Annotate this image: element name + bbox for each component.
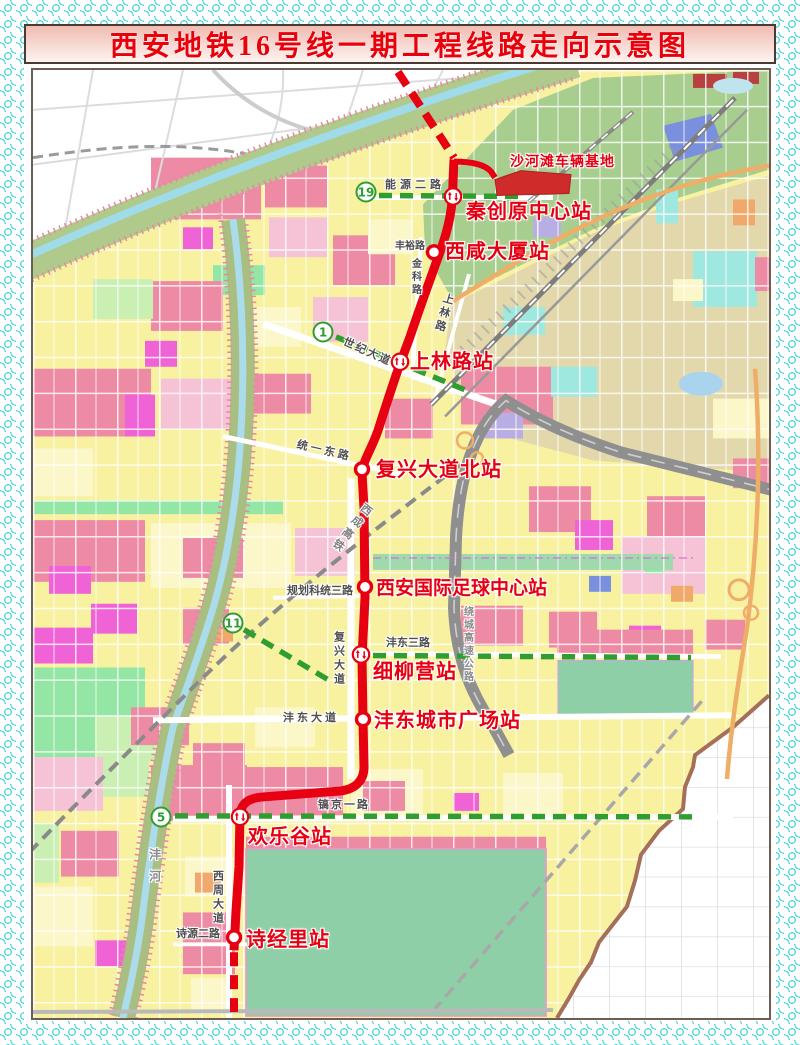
road-label-nengyuan-erlu: 能源二路 xyxy=(385,180,445,192)
station-marker-fuxing-dadao-bei xyxy=(356,463,369,476)
central-park xyxy=(558,661,693,718)
station-marker-shanglin-lu xyxy=(392,354,408,370)
station-marker-fengdong-plaza xyxy=(357,713,370,726)
station-marker-shijingli xyxy=(228,931,241,944)
station-label-qinchuangyuan-center: 秦创原中心站 xyxy=(466,202,592,223)
station-marker-xiliuying xyxy=(353,646,369,662)
road-label-xizhou-dadao: 西周大道 xyxy=(211,870,223,926)
station-label-huanlegu: 欢乐谷站 xyxy=(248,827,332,848)
line-badge-19: 19 xyxy=(356,182,377,203)
poster: 西安地铁16号线一期工程线路走向示意图 xyxy=(0,0,800,1045)
road-label-guihua-ketong-sanlu: 规划科统三路 xyxy=(287,586,353,598)
station-marker-qinchuangyuan-center xyxy=(445,188,461,204)
station-marker-huanlegu xyxy=(232,809,248,825)
station-label-xixian-dasha: 西咸大厦站 xyxy=(445,242,550,263)
line-badge-5: 5 xyxy=(151,807,172,828)
station-label-shanglin-lu: 上林路站 xyxy=(410,352,494,373)
line-badge-1: 1 xyxy=(313,322,334,343)
station-label-football-center: 西安国际足球中心站 xyxy=(376,579,547,599)
river-label-fenghe: 沣河 xyxy=(148,848,161,892)
station-marker-football-center xyxy=(359,580,372,593)
map-canvas xyxy=(33,70,769,1018)
station-label-xiliuying: 细柳营站 xyxy=(373,662,457,683)
page-title: 西安地铁16号线一期工程线路走向示意图 xyxy=(110,24,690,64)
poster-inner: 西安地铁16号线一期工程线路走向示意图 xyxy=(24,24,776,1021)
station-label-fuxing-dadao-bei: 复兴大道北站 xyxy=(376,460,502,481)
road-label-jinke-lu: 金科路 xyxy=(409,258,420,297)
depot-label: 沙河滩车辆基地 xyxy=(510,154,615,169)
station-label-fengdong-plaza: 沣东城市广场站 xyxy=(374,711,521,732)
road-label-shiyuan-erlu: 诗源二路 xyxy=(176,929,220,941)
title-bar: 西安地铁16号线一期工程线路走向示意图 xyxy=(24,24,776,64)
road-label-haojing-yilu: 镐京一路 xyxy=(318,800,370,812)
line-badge-11: 11 xyxy=(223,613,244,634)
road-label-fengyu-lu: 丰裕路 xyxy=(395,242,425,253)
station-label-shijingli: 诗经里站 xyxy=(246,930,330,951)
road-label-fengdong-dadao: 沣东大道 xyxy=(283,713,339,725)
road-label-fuxing-dadao: 复兴大道 xyxy=(332,631,344,687)
route-map: 19 1 11 5 沙河滩车辆基地 秦创原中心站 西咸大厦站 上林路站 复兴大道… xyxy=(31,68,771,1020)
station-marker-xixian-dasha xyxy=(428,246,441,259)
road-label-fengdong-sanlu: 沣东三路 xyxy=(386,638,430,650)
highway-label-raocheng: 绕城高速公路 xyxy=(461,606,472,684)
